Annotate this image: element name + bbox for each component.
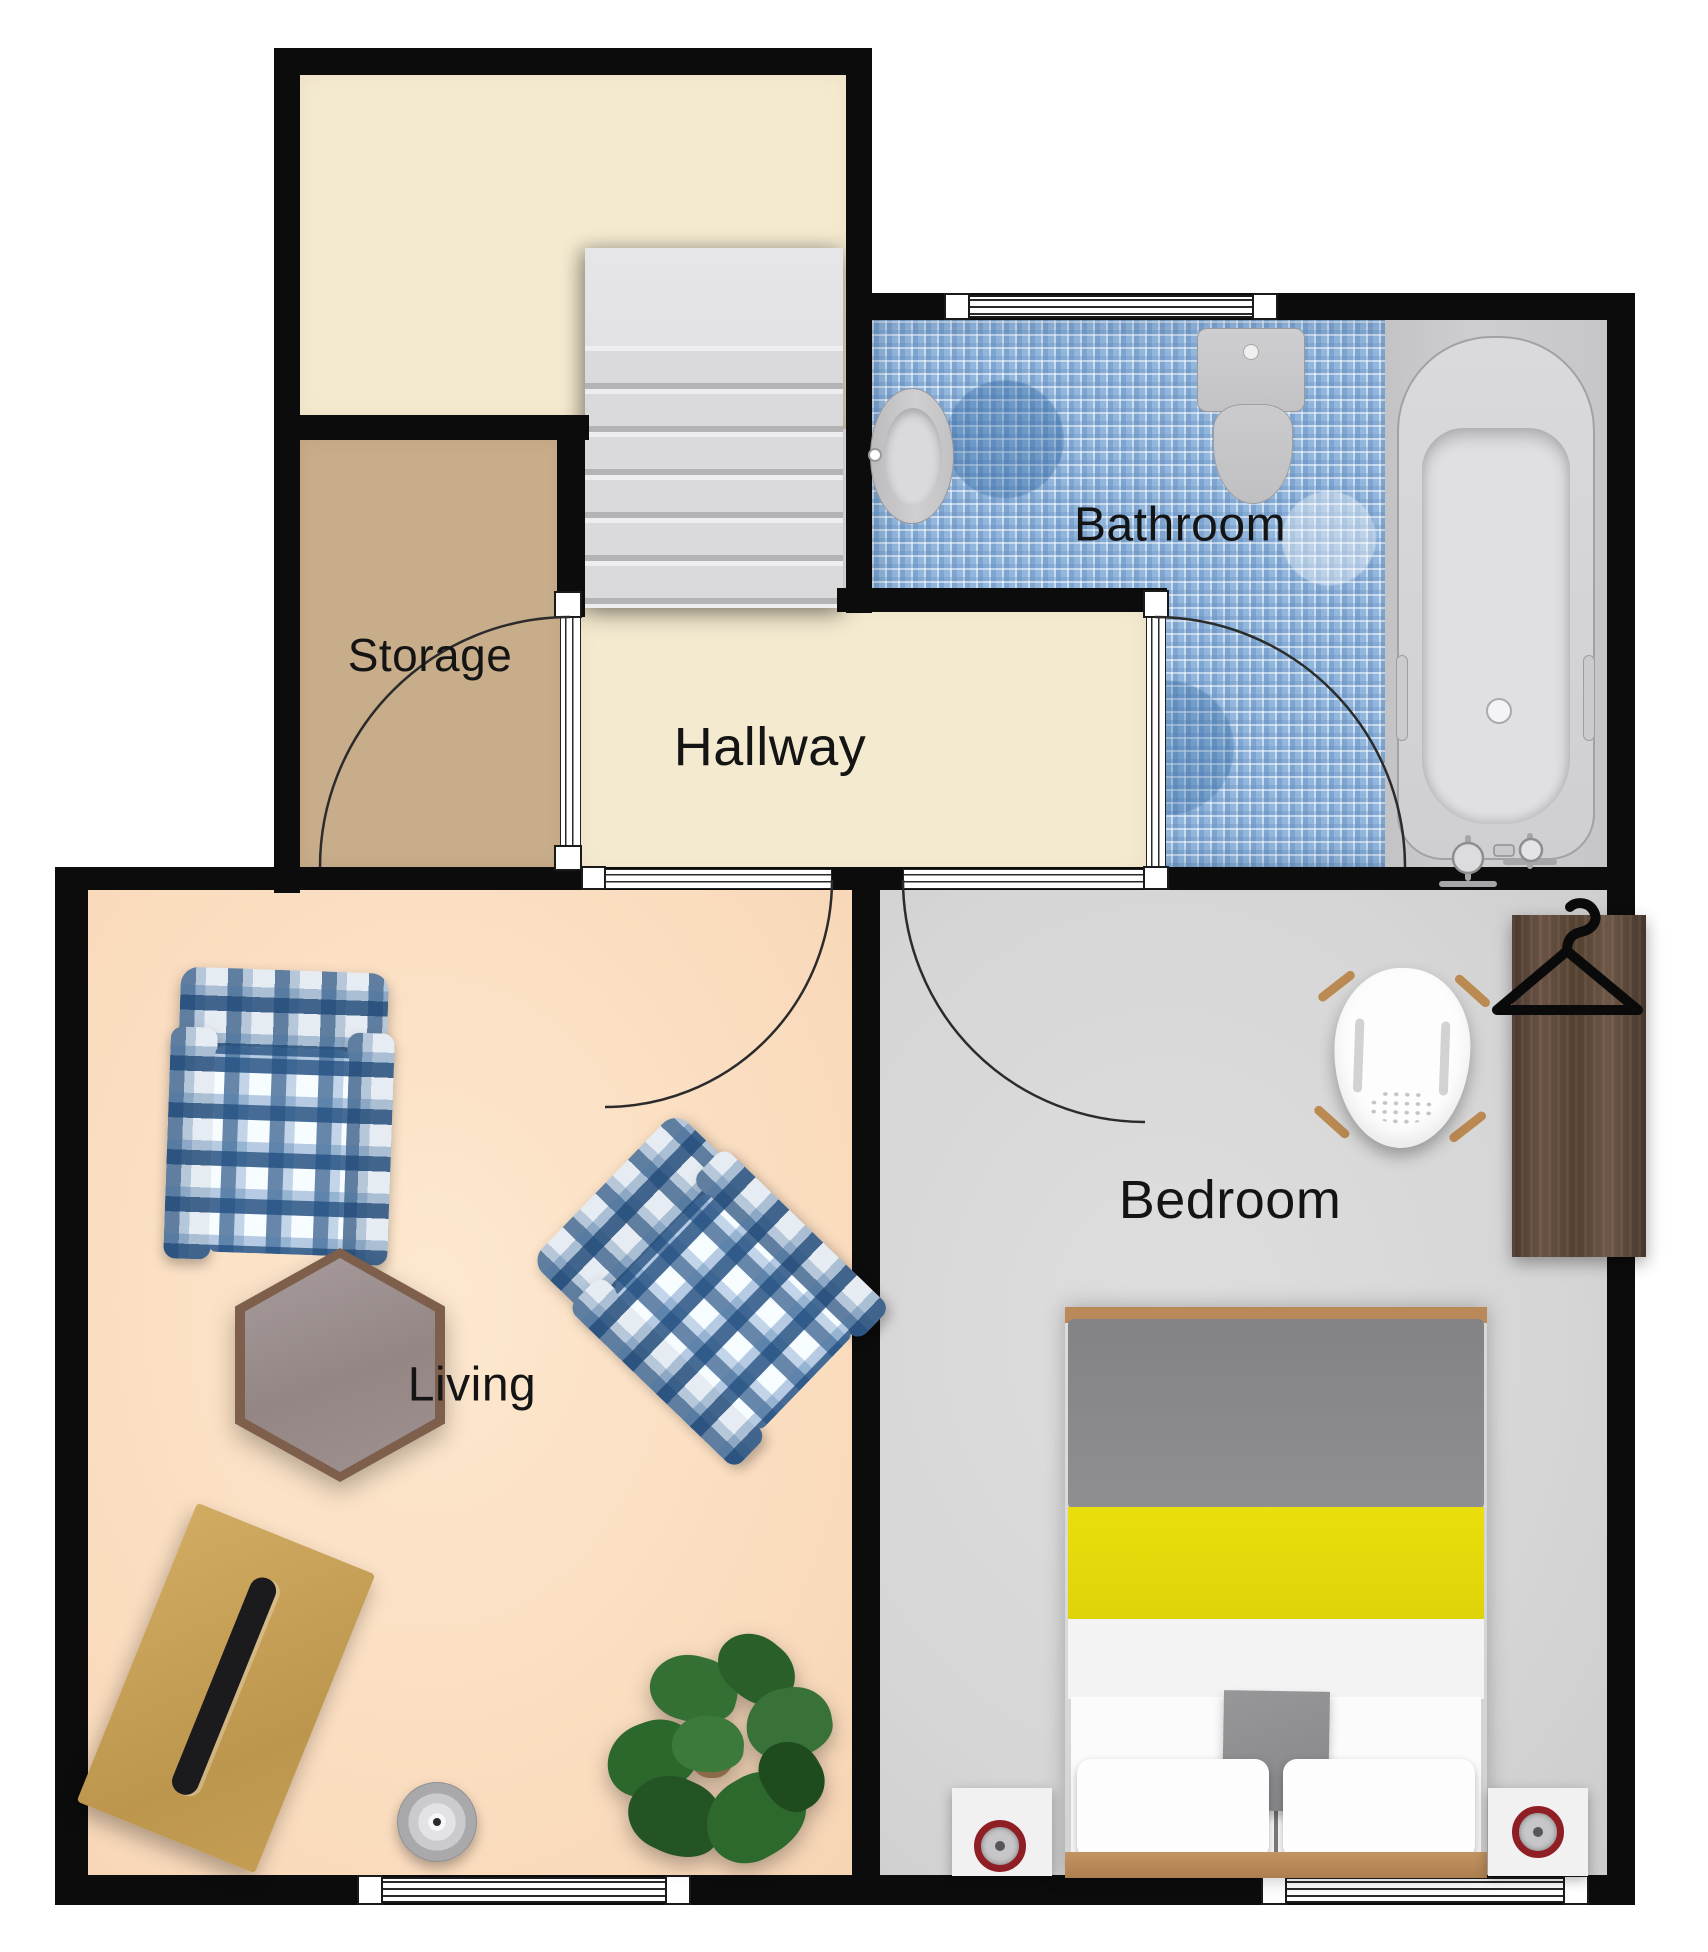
alarm-clock-right <box>1512 1806 1564 1858</box>
bedroom-label: Bedroom <box>1119 1169 1342 1231</box>
sink-bowl <box>884 408 942 506</box>
wall-stairwell <box>557 415 585 617</box>
wall-left-upper <box>274 48 300 893</box>
bed-pillow-right <box>1283 1759 1475 1859</box>
double-bed <box>1065 1307 1487 1878</box>
door-hinge-block <box>1143 590 1169 618</box>
wall-upper-room-right <box>846 48 872 613</box>
door-hinge-block <box>1143 866 1169 890</box>
storage-label: Storage <box>348 628 513 682</box>
door-hinge-block <box>581 866 606 890</box>
window-cap <box>357 1875 383 1905</box>
round-speaker <box>397 1782 477 1862</box>
floor-plan: Storage Hallway Bathroom Living Bedroom <box>0 0 1708 1952</box>
window-cap <box>1261 1875 1287 1905</box>
bathroom-door <box>1146 617 1166 867</box>
living-label: Living <box>408 1358 536 1413</box>
bed-headboard <box>1065 1852 1487 1878</box>
window-cap <box>1252 293 1278 320</box>
laptop <box>168 1574 280 1799</box>
wall-hallway-top <box>837 588 1167 612</box>
bathtub-basin <box>1422 428 1570 824</box>
hallway-label: Hallway <box>674 716 867 778</box>
bathroom-window <box>950 295 1272 318</box>
door-hinge-block <box>554 845 582 871</box>
wall-living-bedroom-divider <box>852 867 880 1887</box>
living-window <box>363 1877 685 1903</box>
door-hinge-block <box>554 591 582 618</box>
stair-treads <box>585 346 843 608</box>
wall-top <box>274 48 872 75</box>
bed-folded-sheet <box>1068 1619 1484 1699</box>
wall-storage-top <box>274 415 589 440</box>
storage-door <box>560 617 581 867</box>
potted-plant <box>598 1630 833 1878</box>
wardrobe <box>1512 915 1646 1257</box>
bathtub-handle <box>1396 655 1408 741</box>
desk-chair <box>1319 959 1486 1160</box>
bed-pillow-left <box>1077 1759 1269 1859</box>
wall-left <box>55 867 88 1905</box>
window-cap <box>944 293 970 320</box>
living-room-door <box>605 869 832 889</box>
armchair-seat <box>208 1046 349 1257</box>
bed-duvet <box>1068 1319 1484 1509</box>
alarm-clock-left <box>974 1820 1026 1872</box>
toilet-flush-button <box>1243 344 1259 360</box>
bedroom-door <box>903 869 1145 889</box>
bedroom-window <box>1267 1877 1586 1903</box>
stairs <box>585 248 843 608</box>
bed-yellow-runner <box>1068 1507 1484 1621</box>
window-cap <box>1563 1875 1589 1905</box>
bathtub-drain <box>1486 698 1512 724</box>
toilet-tank <box>1197 328 1305 412</box>
plaid-armchair-1 <box>163 966 397 1274</box>
wall-middle <box>55 867 1615 890</box>
bathtub-handle <box>1583 655 1595 741</box>
bathroom-label: Bathroom <box>1074 498 1286 553</box>
sink-tap <box>868 448 882 462</box>
window-cap <box>665 1875 691 1905</box>
